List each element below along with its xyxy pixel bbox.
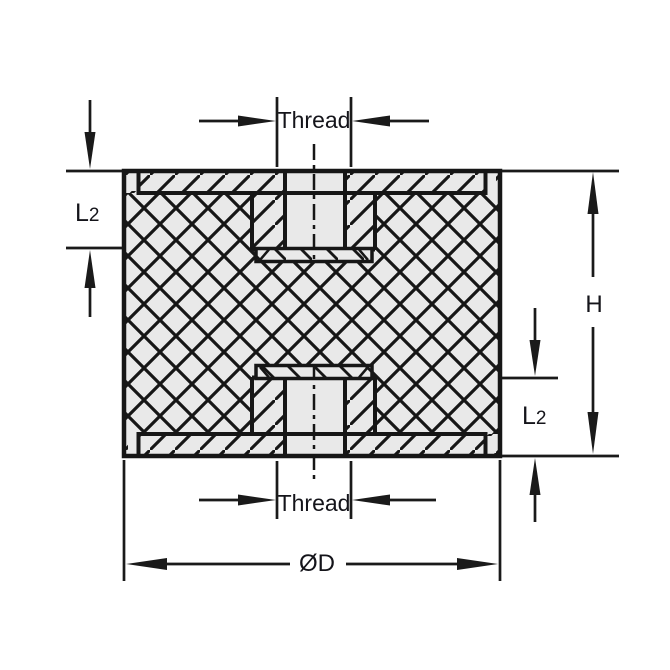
drawing-canvas: Thread Thread L2 L2 H ØD (0, 0, 670, 670)
top-plate-rim-notch-left (128, 174, 137, 191)
dim-diameter: ØD (124, 460, 500, 581)
arrowhead-right-icon (238, 116, 276, 127)
thread-bottom-label: Thread (278, 490, 351, 516)
arrowhead-up-icon (588, 172, 599, 214)
arrowhead-left-icon (126, 558, 167, 570)
arrowhead-up-icon (530, 458, 541, 495)
bottom-plate-rim-notch-left (128, 436, 137, 453)
arrowhead-left-icon (352, 495, 390, 506)
arrowhead-down-icon (85, 132, 96, 169)
bottom-plate-rim-notch-right (487, 436, 496, 453)
mount-body (124, 144, 500, 482)
dim-thread-bottom: Thread (199, 461, 436, 519)
l2-left-label: L2 (75, 199, 99, 227)
arrowhead-right-icon (457, 558, 498, 570)
arrowhead-up-icon (85, 250, 96, 288)
dim-height: H (502, 171, 619, 456)
arrowhead-right-icon (238, 495, 276, 506)
arrowhead-left-icon (352, 116, 390, 127)
dim-l2-left: L2 (66, 100, 122, 317)
height-label: H (585, 291, 602, 318)
arrowhead-down-icon (588, 412, 599, 454)
mount-cross-section-drawing: Thread Thread L2 L2 H ØD (0, 0, 670, 670)
arrowhead-down-icon (530, 340, 541, 376)
diameter-label: ØD (299, 550, 335, 577)
l2-right-label: L2 (522, 402, 546, 430)
top-plate-rim-notch-right (487, 174, 496, 191)
dim-l2-right: L2 (502, 308, 558, 522)
thread-top-label: Thread (278, 107, 351, 133)
